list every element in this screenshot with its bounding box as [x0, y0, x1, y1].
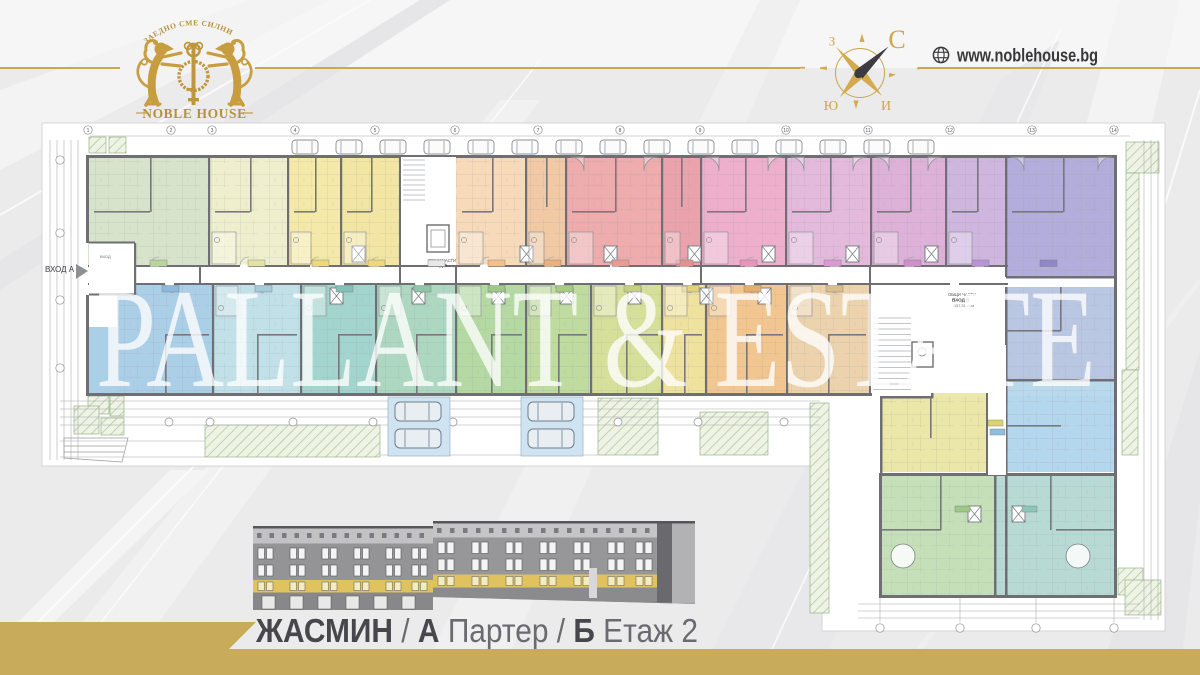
- svg-text:З: З: [829, 34, 836, 49]
- svg-text:NOBLE HOUSE: NOBLE HOUSE: [142, 106, 247, 121]
- svg-text:14: 14: [1111, 128, 1117, 134]
- svg-text:9: 9: [699, 128, 702, 134]
- svg-text:8: 8: [619, 128, 622, 134]
- svg-text:4: 4: [294, 128, 297, 134]
- svg-text:ЖАСМИН / А Партер / Б Етаж 2: ЖАСМИН / А Партер / Б Етаж 2: [255, 612, 698, 649]
- svg-text:www.noblehouse.bg: www.noblehouse.bg: [956, 46, 1098, 66]
- svg-text:10: 10: [783, 128, 789, 134]
- svg-text:7: 7: [537, 128, 540, 134]
- svg-text:PALLANT & ESTATE: PALLANT & ESTATE: [96, 261, 1096, 417]
- svg-text:6: 6: [454, 128, 457, 134]
- svg-text:12: 12: [947, 128, 953, 134]
- svg-text:11: 11: [865, 128, 870, 134]
- svg-text:Ю: Ю: [824, 99, 838, 114]
- svg-text:2: 2: [170, 128, 173, 134]
- svg-text:13: 13: [1029, 128, 1035, 134]
- svg-text:ВХОД А: ВХОД А: [45, 265, 75, 274]
- svg-text:3: 3: [211, 128, 214, 134]
- svg-text:И: И: [881, 99, 891, 114]
- svg-text:5: 5: [374, 128, 377, 134]
- svg-text:1: 1: [87, 128, 90, 134]
- svg-text:С: С: [888, 25, 905, 54]
- svg-text:ВХОД: ВХОД: [100, 254, 111, 259]
